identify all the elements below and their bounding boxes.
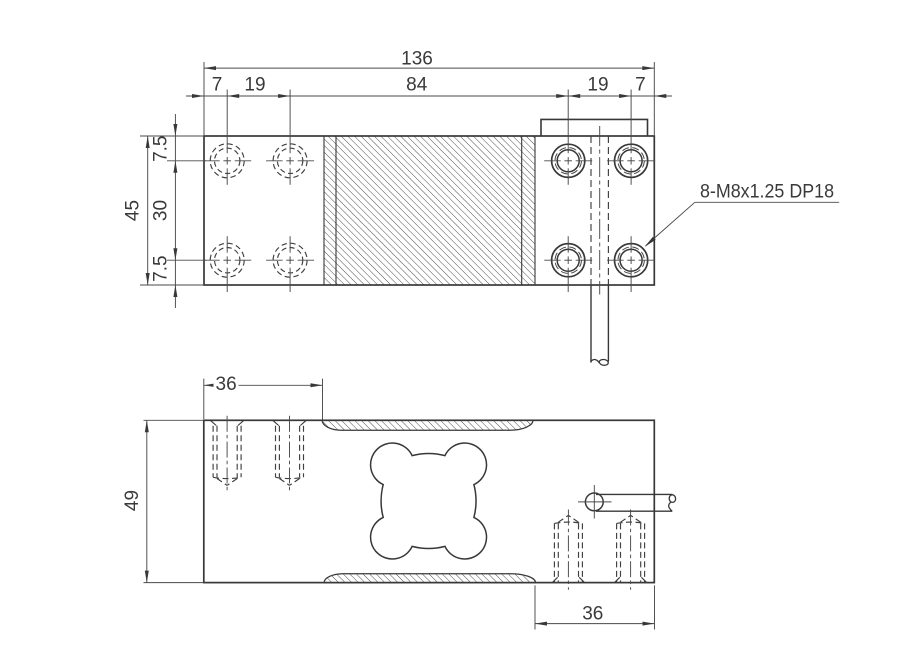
svg-text:7.5: 7.5 xyxy=(151,255,172,281)
svg-text:7: 7 xyxy=(635,75,646,96)
svg-text:8-M8x1.25 DP18: 8-M8x1.25 DP18 xyxy=(700,182,834,203)
svg-text:19: 19 xyxy=(587,75,608,96)
svg-text:45: 45 xyxy=(122,200,143,221)
svg-text:136: 136 xyxy=(401,49,433,70)
svg-text:49: 49 xyxy=(122,490,143,511)
svg-text:36: 36 xyxy=(582,603,603,624)
svg-text:7.5: 7.5 xyxy=(151,135,172,161)
svg-text:7: 7 xyxy=(212,75,223,96)
svg-text:19: 19 xyxy=(244,75,265,96)
svg-text:36: 36 xyxy=(216,374,237,395)
svg-text:30: 30 xyxy=(151,200,172,221)
svg-text:84: 84 xyxy=(406,75,428,96)
